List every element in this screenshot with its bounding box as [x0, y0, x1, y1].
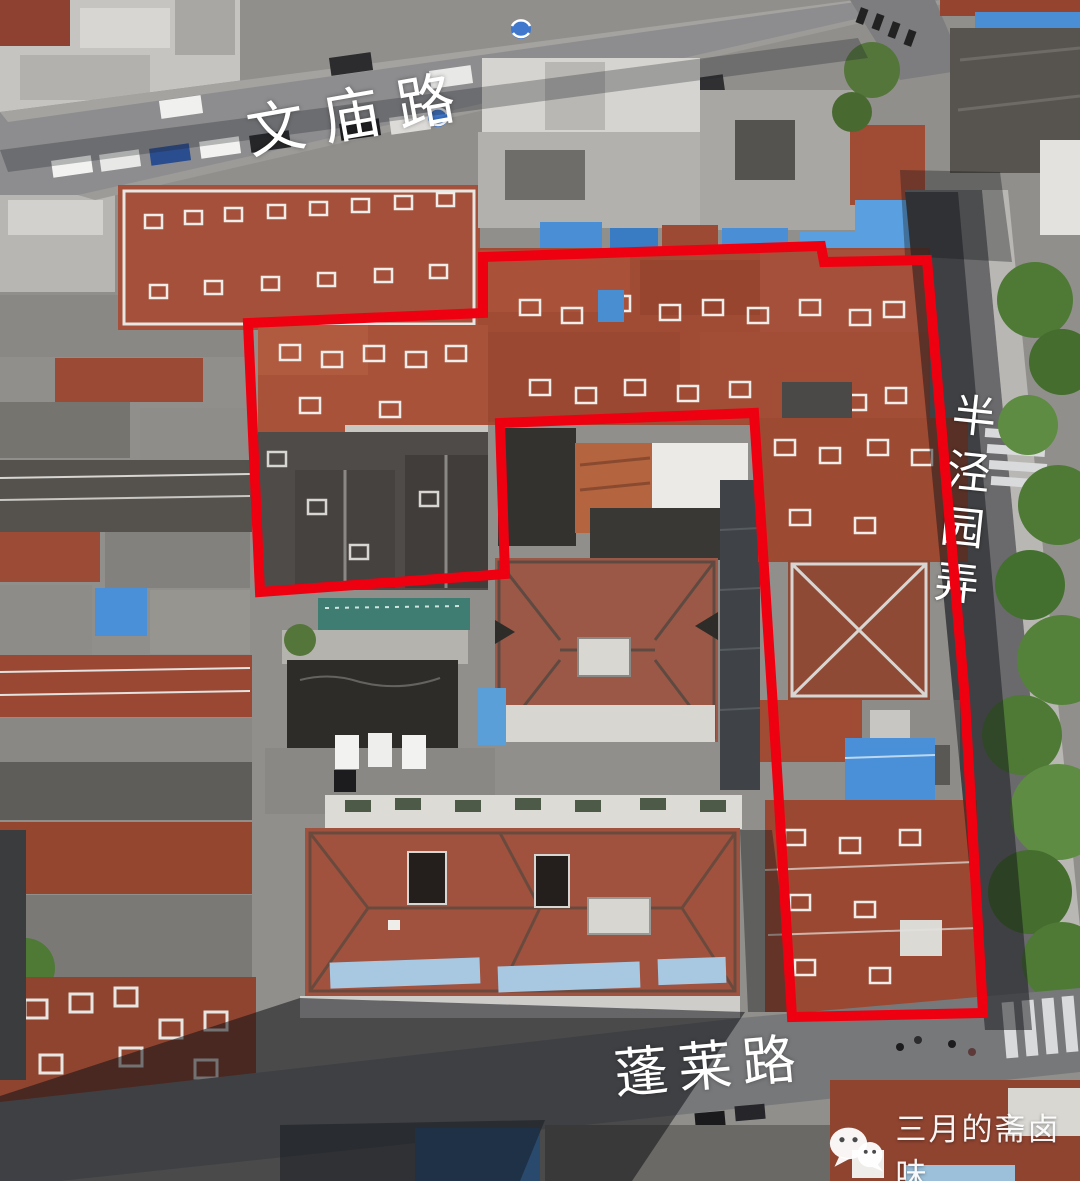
left-blocks — [0, 295, 256, 1105]
aerial-photo: 半泾园弄 文庙路 蓬莱路 三月的斋卤味 — [0, 0, 1080, 1181]
south-building — [300, 795, 742, 1018]
watermark: 三月的斋卤味 — [828, 1104, 1080, 1181]
courtyard-building — [478, 558, 718, 745]
aerial-scene — [0, 0, 1080, 1181]
wechat-icon — [828, 1124, 890, 1174]
roadside-red-building — [118, 185, 480, 330]
zone-left-block — [258, 325, 488, 590]
watermark-text: 三月的斋卤味 — [896, 1104, 1080, 1181]
